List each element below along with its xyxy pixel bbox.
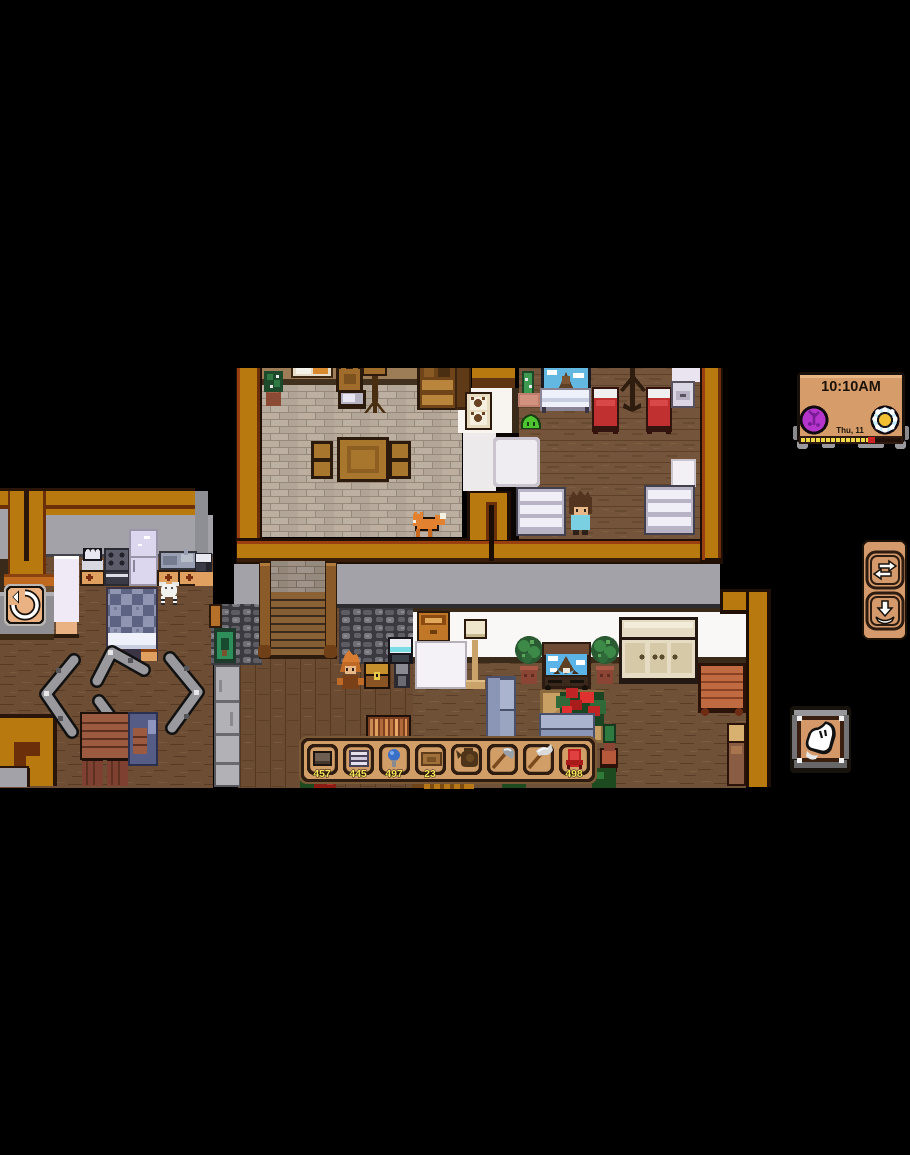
svg-text:Thu, 11: Thu, 11 [836, 426, 864, 435]
svg-text:445: 445 [349, 768, 367, 780]
svg-text:497: 497 [385, 768, 403, 780]
svg-text:498: 498 [565, 768, 583, 780]
svg-text:23: 23 [424, 768, 436, 780]
svg-text:10:10AM: 10:10AM [821, 379, 881, 395]
svg-text:457: 457 [313, 768, 331, 780]
